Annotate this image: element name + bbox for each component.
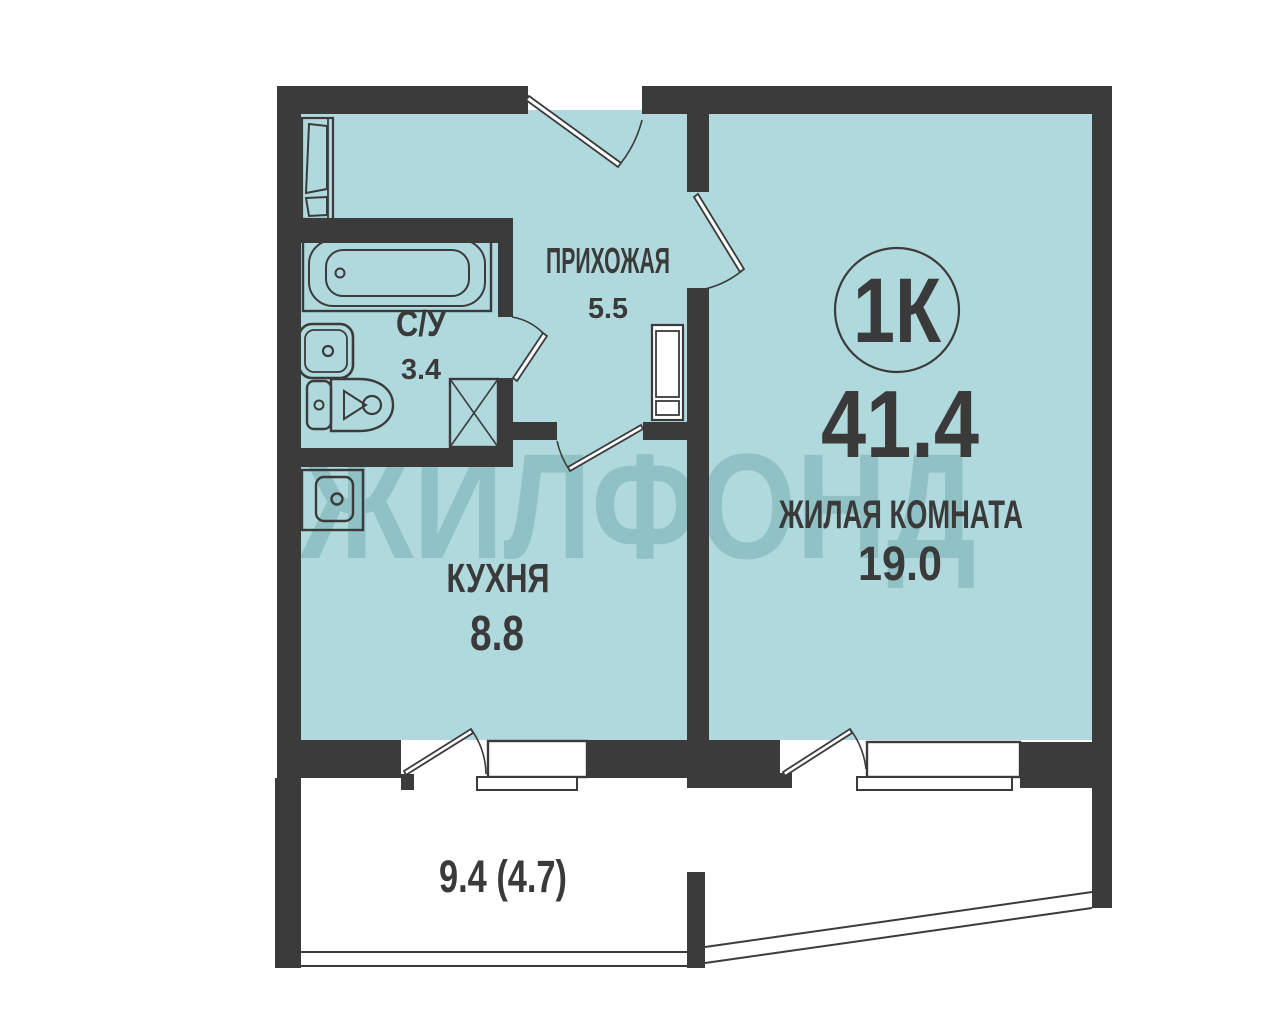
wall-bathroom-top (301, 218, 513, 243)
room-label-kitchen: КУХНЯ (447, 555, 550, 601)
wall-left (277, 114, 301, 778)
room-area-kitchen: 8.8 (470, 607, 524, 661)
wall-bottom-mid (587, 740, 687, 778)
wall-bottom-kitchen-left (277, 740, 401, 778)
room-area-hallway: 5.5 (588, 293, 628, 325)
room-label-hallway: ПРИХОЖАЯ (546, 240, 670, 281)
balcony-pillar-mid (687, 872, 705, 968)
room-label-living: ЖИЛАЯ КОМНАТА (778, 493, 1023, 537)
balcony-pillar-left (275, 778, 301, 968)
floor-plan-page: ЖИЛФОНД (0, 0, 1280, 1024)
wall-bathroom-right-upper (498, 243, 513, 317)
living-window (857, 742, 1020, 790)
wall-top-right (642, 86, 1112, 114)
balcony-area-label: 9.4 (4.7) (439, 851, 567, 902)
wall-divider-upper (687, 114, 709, 192)
kitchen-window (477, 741, 587, 790)
wall-divider-main (687, 288, 709, 740)
floor-plan: ЖИЛФОНД (0, 0, 1280, 1024)
wall-bathroom-bottom (301, 448, 513, 467)
wall-right (1092, 114, 1112, 908)
wall-top-left (277, 86, 528, 114)
room-area-bathroom: 3.4 (401, 354, 441, 386)
wall-bottom-living-left (687, 740, 780, 788)
wardrobe-icon (652, 325, 683, 420)
room-area-living: 19.0 (858, 538, 942, 591)
wall-kitchen-door-left (513, 422, 557, 440)
total-area-label: 41.4 (821, 371, 979, 478)
wall-bottom-kitchen-stub (401, 774, 414, 790)
wall-kitchen-door-right (643, 422, 687, 440)
wall-bottom-living-right (1020, 742, 1092, 788)
apartment-type-badge: 1К (853, 260, 942, 362)
room-label-bathroom: С/У (396, 303, 447, 344)
